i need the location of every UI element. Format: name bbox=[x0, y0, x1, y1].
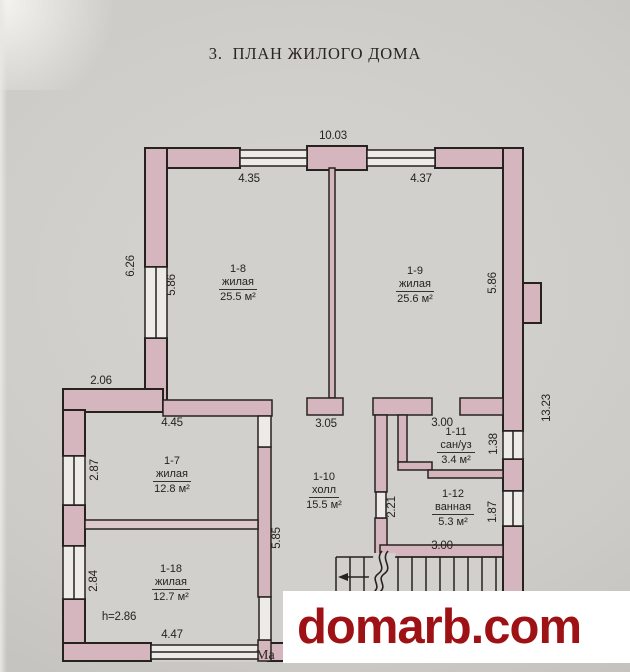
room-area: 5.3 м² bbox=[408, 515, 498, 529]
dim-hall-wall: 5.85 bbox=[270, 514, 284, 562]
dim-left-inner-upper: 5.86 bbox=[165, 261, 179, 309]
dim-hall-mid: 2.21 bbox=[385, 483, 399, 531]
room-label-1-9: 1-9 жилая 25.6 м² bbox=[370, 265, 460, 306]
room-label-1-8: 1-8 жилая 25.5 м² bbox=[193, 263, 283, 304]
dim-top-left-room: 4.35 bbox=[225, 172, 273, 186]
dim-bath-bottom: 3.00 bbox=[418, 539, 466, 553]
room-id: 1-11 bbox=[411, 426, 501, 439]
room-id: 1-12 bbox=[408, 488, 498, 501]
room-area: 25.6 м² bbox=[370, 292, 460, 306]
dim-right-outer: 13.23 bbox=[540, 384, 554, 432]
room-area: 25.5 м² bbox=[193, 290, 283, 304]
dim-room18-left: 2.84 bbox=[87, 557, 101, 605]
room-name: жилая bbox=[219, 276, 257, 291]
dim-ceiling-height: h=2.86 bbox=[89, 610, 149, 624]
room-name: жилая bbox=[153, 468, 191, 483]
dim-top-overall: 10.03 bbox=[309, 129, 357, 143]
room-name: жилая bbox=[152, 576, 190, 591]
dim-right-inner-upper: 5.86 bbox=[486, 259, 500, 307]
room-area: 3.4 м² bbox=[411, 453, 501, 467]
dim-room7-top: 4.45 bbox=[148, 416, 196, 430]
dim-top-right-room: 4.37 bbox=[397, 172, 445, 186]
room-id: 1-9 bbox=[370, 265, 460, 278]
room-id: 1-8 bbox=[193, 263, 283, 276]
dim-left-outer-upper: 6.26 bbox=[124, 242, 138, 290]
room-name: холл bbox=[309, 484, 339, 499]
room-label-1-10: 1-10 холл 15.5 м² bbox=[279, 471, 369, 512]
dim-room7-left: 2.87 bbox=[88, 446, 102, 494]
room-name: ванная bbox=[432, 501, 474, 516]
dim-hall-top: 3.05 bbox=[302, 417, 350, 431]
room-id: 1-18 bbox=[126, 563, 216, 576]
room-name: сан/уз bbox=[437, 439, 474, 454]
watermark-logo-text: domarb.com bbox=[283, 603, 581, 652]
room-area: 12.7 м² bbox=[126, 590, 216, 604]
scale-note-partial: Ма bbox=[256, 648, 275, 664]
room-area: 12.8 м² bbox=[127, 482, 217, 496]
room-area: 15.5 м² bbox=[279, 498, 369, 512]
dim-room18-bottom: 4.47 bbox=[148, 628, 196, 642]
room-label-1-11: 1-11 сан/уз 3.4 м² bbox=[411, 426, 501, 467]
room-id: 1-7 bbox=[127, 455, 217, 468]
room-label-1-7: 1-7 жилая 12.8 м² bbox=[127, 455, 217, 496]
room-label-1-12: 1-12 ванная 5.3 м² bbox=[408, 488, 498, 529]
dim-left-offset: 2.06 bbox=[77, 374, 125, 388]
room-label-1-18: 1-18 жилая 12.7 м² bbox=[126, 563, 216, 604]
room-id: 1-10 bbox=[279, 471, 369, 484]
watermark-banner: domarb.com bbox=[283, 591, 630, 663]
room-name: жилая bbox=[396, 278, 434, 293]
scanned-floorplan-page: 3. ПЛАН ЖИЛОГО ДОМА bbox=[0, 0, 630, 672]
